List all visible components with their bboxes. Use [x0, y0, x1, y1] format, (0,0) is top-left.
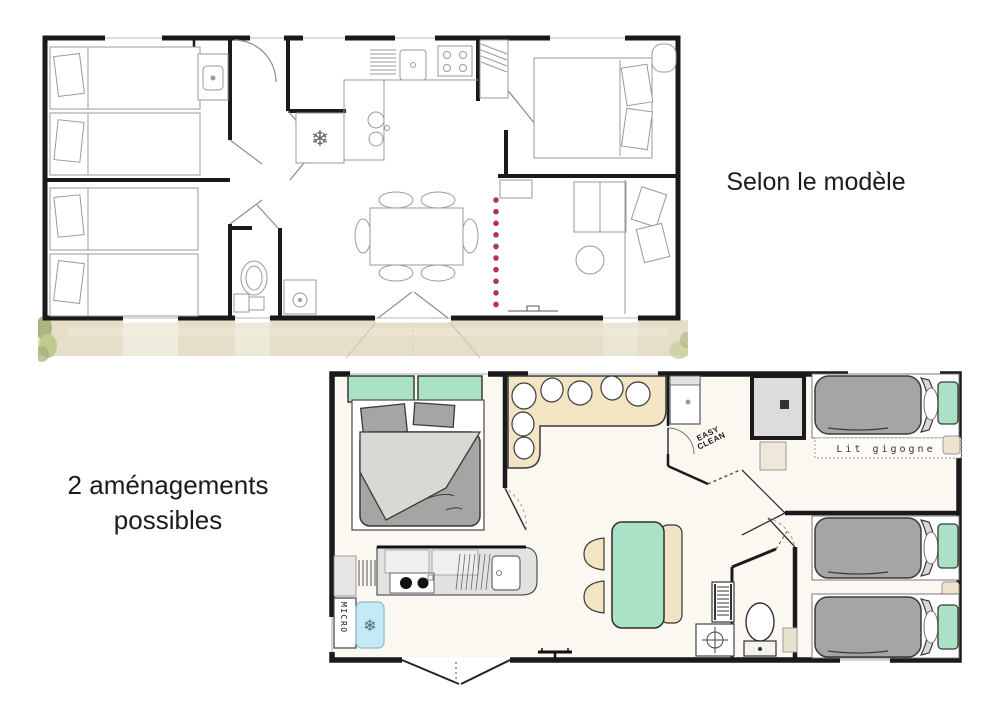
- table: [612, 522, 664, 628]
- caption-amenagements-line1: 2 aménagements: [30, 468, 306, 503]
- headboard-left: [348, 376, 414, 402]
- single-bed-duvet-3: [815, 597, 921, 657]
- bottom-floorplan: EASY CLEAN: [328, 370, 968, 702]
- pillow-right: [413, 403, 454, 428]
- entrance-door: [402, 657, 510, 686]
- twin-bed-1: [50, 47, 200, 109]
- kitchen-drainer: [370, 50, 396, 74]
- toilet: [744, 603, 776, 656]
- twin-bed-3: [50, 188, 198, 250]
- single-bed-duvet-1: [815, 376, 921, 434]
- fridge: ❄: [356, 602, 384, 648]
- shower-step: [760, 442, 786, 470]
- teal-pillow-2: [938, 524, 958, 568]
- corner-basin: [284, 280, 316, 314]
- caption-selon-le-modele: Selon le modèle: [700, 168, 932, 197]
- fridge-snowflake-icon: ❄: [363, 618, 376, 635]
- page: ❄: [0, 0, 1000, 706]
- caption-amenagements: 2 aménagements possibles: [30, 468, 306, 538]
- kitchen-hob: [438, 46, 472, 76]
- lit-gigogne-label: Lit gigogne: [815, 436, 961, 458]
- teal-pillow-1: [938, 382, 958, 424]
- hob: [390, 573, 434, 593]
- headboard-right: [418, 376, 482, 402]
- lit-gigogne-text: Lit gigogne: [836, 444, 935, 455]
- radiator: [712, 582, 734, 622]
- terrace: [38, 320, 688, 358]
- teal-pillow-3: [938, 605, 958, 649]
- twin-bed-2: [50, 113, 200, 175]
- shower-drain: [780, 400, 789, 409]
- microwave-label: MICRO: [339, 602, 348, 634]
- fridge: ❄: [296, 113, 344, 163]
- top-floorplan: ❄: [38, 28, 688, 362]
- microwave: MICRO: [334, 598, 356, 648]
- water-heater: [480, 40, 508, 98]
- caption-amenagements-line2: possibles: [30, 503, 306, 538]
- twin-bed-4: [50, 254, 198, 316]
- fridge-snowflake-icon: ❄: [311, 126, 329, 151]
- bathroom-sink: [198, 54, 228, 100]
- lit-gigogne-room: Lit gigogne: [812, 374, 961, 458]
- gas-point: [696, 624, 734, 656]
- single-bed-duvet-2: [815, 518, 921, 578]
